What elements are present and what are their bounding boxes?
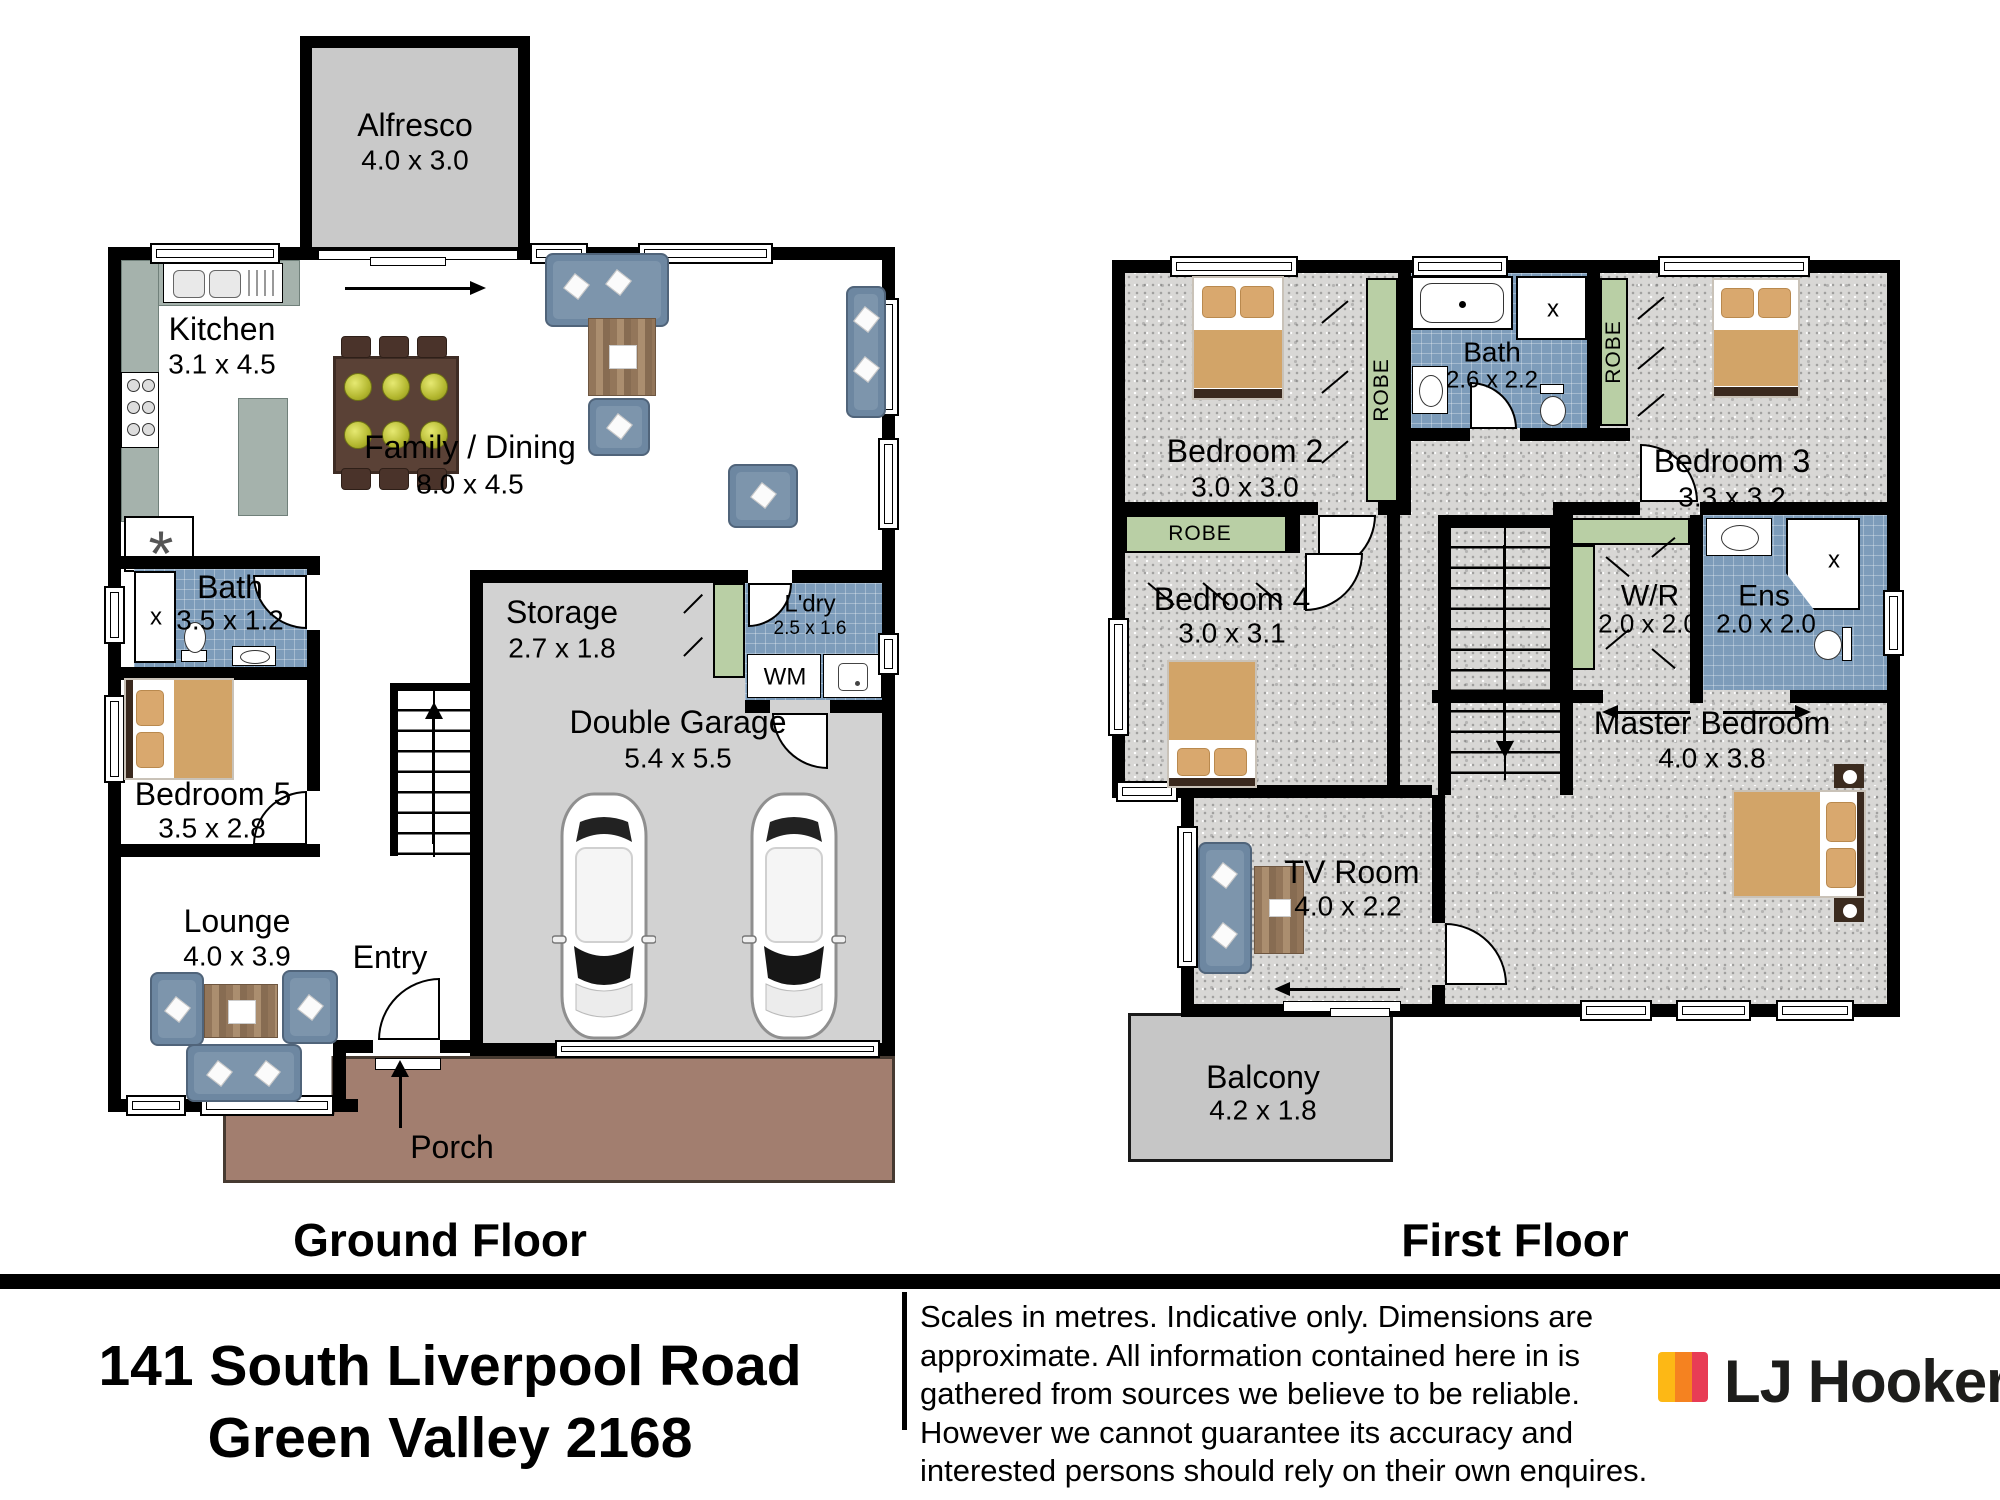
wall-segment (1520, 428, 1630, 441)
shower: x (1516, 276, 1587, 340)
sofa (545, 253, 669, 327)
room-label-storage: Storage (506, 596, 618, 630)
room-dims-family: 8.0 x 4.5 (416, 469, 523, 498)
window (104, 695, 125, 783)
sofa (186, 1044, 302, 1102)
wall-segment (470, 570, 483, 1043)
sofa (1198, 842, 1252, 974)
shower: x (134, 571, 176, 663)
dining-chair (417, 336, 447, 358)
wall-segment (1587, 273, 1600, 441)
room-label-master: Master Bedroom (1594, 707, 1831, 741)
stove-icon (121, 372, 159, 448)
stair-up-arrowhead (425, 702, 443, 719)
bed (1732, 790, 1866, 898)
wall-segment (333, 1040, 346, 1112)
window (878, 633, 899, 675)
wall-segment (1790, 690, 1887, 703)
room-dims-bath1: 2.6 x 2.2 (1446, 367, 1538, 392)
floor-title-first: First Floor (1401, 1216, 1628, 1264)
wall-segment (121, 556, 320, 569)
room-label-lounge: Lounge (184, 905, 291, 939)
robe-label: ROBE (1603, 320, 1625, 384)
wall-segment (1553, 502, 1640, 515)
disclaimer-line: However we cannot guarantee its accuracy… (920, 1414, 1647, 1453)
room-label-bed3: Bedroom 3 (1654, 445, 1811, 479)
room-dims-master: 4.0 x 3.8 (1658, 743, 1765, 772)
armchair (282, 970, 338, 1044)
room-label-alfresco: Alfresco (357, 109, 473, 143)
dining-chair (341, 468, 371, 490)
room-dims-kitchen: 3.1 x 4.5 (168, 349, 275, 378)
room-dims-bed5: 3.5 x 2.8 (158, 813, 265, 842)
coffee-table-rug (588, 318, 656, 396)
room-dims-lounge: 4.0 x 3.9 (183, 941, 290, 970)
stair-down-arrow (1503, 545, 1506, 741)
bed (124, 678, 234, 780)
window (1170, 256, 1298, 277)
brand-stripe-red (1692, 1352, 1708, 1402)
robe-label: ROBE (1168, 523, 1232, 545)
slide-arrow-head (470, 281, 486, 295)
disclaimer-line: approximate. All information contained h… (920, 1337, 1647, 1376)
room-dims-bath-g: 3.5 x 1.2 (176, 605, 283, 634)
slide-arrow-line (1290, 988, 1400, 991)
wall-segment (792, 570, 895, 583)
porch-area (223, 1056, 895, 1183)
floorplan-page: * x WM (0, 0, 2000, 1500)
car-icon (552, 788, 656, 1044)
porch-arrow (399, 1076, 402, 1128)
window (1177, 826, 1198, 968)
room-label-ldry: L'dry (784, 591, 835, 616)
room-label-porch: Porch (410, 1131, 494, 1165)
lounge-rug (204, 984, 278, 1038)
room-label-bath1: Bath (1463, 337, 1521, 366)
stair-rail (390, 683, 398, 856)
wall-segment (307, 630, 320, 791)
room-label-tv: TV Room (1284, 856, 1419, 890)
room-label-bed5: Bedroom 5 (135, 778, 292, 812)
wall-segment (1560, 515, 1573, 795)
disclaimer-line: gathered from sources we believe to be r… (920, 1375, 1647, 1414)
nightstand (1834, 898, 1864, 922)
brand-stripe-yellow (1658, 1352, 1675, 1402)
address-line2: Green Valley 2168 (98, 1402, 801, 1474)
window (1658, 256, 1810, 277)
window (1776, 1000, 1854, 1021)
wall-segment (1287, 515, 1300, 553)
shower-x-icon: x (1547, 296, 1559, 321)
room-label-balcony: Balcony (1206, 1061, 1320, 1095)
sliding-door-panel (1330, 1008, 1390, 1017)
address-line1: 141 South Liverpool Road (98, 1330, 801, 1402)
room-label-entry: Entry (353, 941, 428, 975)
stair-up-arrow (432, 718, 435, 844)
window (1883, 590, 1904, 656)
wall-segment (1411, 428, 1470, 441)
basin (1412, 366, 1448, 414)
brand-stripe-orange (1675, 1352, 1692, 1402)
wall-segment (1432, 985, 1445, 1004)
wall-segment (1432, 795, 1445, 923)
stair-down-arrowhead (1496, 741, 1514, 758)
wall-segment (121, 844, 320, 857)
window (1676, 1000, 1751, 1021)
toilet-bowl-icon (1540, 396, 1566, 426)
brand-name: LJ Hooker (1724, 1347, 2000, 1416)
wall-segment (1378, 502, 1411, 515)
footer-vertical-rule (902, 1292, 907, 1430)
sliding-door-panel (370, 257, 446, 266)
wall-segment (1438, 515, 1451, 795)
floor-title-ground: Ground Floor (293, 1216, 587, 1264)
wall-segment (307, 556, 320, 575)
window (878, 438, 899, 530)
window (1412, 256, 1508, 277)
room-label-wr: W/R (1621, 580, 1679, 612)
bathtub (1411, 276, 1513, 330)
nightstand (1834, 764, 1864, 788)
shower-x-icon: x (150, 604, 162, 629)
bed (1167, 660, 1257, 788)
armchair (588, 398, 650, 456)
room-dims-ldry: 2.5 x 1.6 (774, 619, 847, 639)
room-label-bed2: Bedroom 2 (1167, 435, 1324, 469)
washing-machine: WM (747, 654, 821, 698)
wall-segment (470, 570, 748, 583)
room-dims-alfresco: 4.0 x 3.0 (361, 145, 468, 174)
wall-segment (108, 247, 121, 1112)
room-label-bath-g: Bath (197, 571, 263, 605)
basin (1706, 518, 1772, 556)
wall-segment (440, 1040, 472, 1053)
room-dims-wr: 2.0 x 2.0 (1598, 610, 1698, 637)
bed (1712, 278, 1800, 398)
disclaimer-line: Scales in metres. Indicative only. Dimen… (920, 1298, 1647, 1337)
room-dims-bed3: 3.3 x 3.2 (1678, 482, 1785, 511)
window (1580, 1000, 1652, 1021)
wall-segment (1438, 515, 1573, 528)
slide-arrow-head (1274, 982, 1290, 996)
toilet-bowl-icon (1814, 630, 1842, 660)
window (126, 1095, 186, 1116)
room-dims-tv: 4.0 x 2.2 (1294, 891, 1401, 920)
window (104, 586, 125, 644)
room-label-ens: Ens (1738, 580, 1790, 612)
kitchen-island (238, 398, 288, 516)
wall-segment (1125, 502, 1318, 515)
vanity-basin (232, 646, 276, 666)
wm-label: WM (764, 664, 807, 689)
room-label-kitchen: Kitchen (169, 313, 276, 347)
dining-chair (379, 468, 409, 490)
shower-x-icon: x (1828, 547, 1840, 572)
toilet-icon (1842, 627, 1852, 661)
slide-arrow-line (345, 287, 470, 290)
laundry-tub (823, 654, 882, 698)
room-dims-bed2: 3.0 x 3.0 (1191, 472, 1298, 501)
room-dims-bed4: 3.0 x 3.1 (1178, 618, 1285, 647)
room-label-family: Family / Dining (364, 431, 576, 465)
room-label-bed4: Bedroom 4 (1154, 583, 1311, 617)
disclaimer-text: Scales in metres. Indicative only. Dimen… (920, 1298, 1647, 1491)
wall-segment (1387, 515, 1400, 798)
armchair (150, 972, 204, 1046)
porch-arrowhead (391, 1060, 409, 1077)
wall-segment (307, 845, 320, 857)
dining-chair (341, 336, 371, 358)
disclaimer-line: interested persons should rely on their … (920, 1452, 1647, 1491)
address-block: 141 South Liverpool Road Green Valley 21… (98, 1330, 801, 1474)
room-label-garage: Double Garage (569, 706, 786, 740)
ground-closet (713, 583, 745, 678)
robe-label: ROBE (1371, 358, 1393, 422)
kitchen-sink-icon (163, 263, 283, 303)
armchair (728, 464, 798, 528)
dining-chair (379, 336, 409, 358)
wall-segment (1690, 690, 1703, 703)
sofa (846, 286, 886, 418)
bed (1192, 276, 1284, 400)
toilet-icon (1540, 384, 1564, 394)
window (1108, 618, 1129, 736)
car-icon (742, 788, 846, 1044)
brand-logo (1658, 1352, 1708, 1402)
footer-divider (0, 1274, 2000, 1289)
window (150, 243, 280, 264)
room-dims-balcony: 4.2 x 1.8 (1209, 1095, 1316, 1124)
room-dims-garage: 5.4 x 5.5 (624, 743, 731, 772)
room-dims-ens: 2.0 x 2.0 (1716, 610, 1816, 637)
wall-segment (830, 700, 895, 713)
stair-rail (390, 683, 472, 691)
entry-door-arc (378, 978, 440, 1040)
room-dims-storage: 2.7 x 1.8 (508, 633, 615, 662)
wall-segment (1398, 273, 1411, 502)
